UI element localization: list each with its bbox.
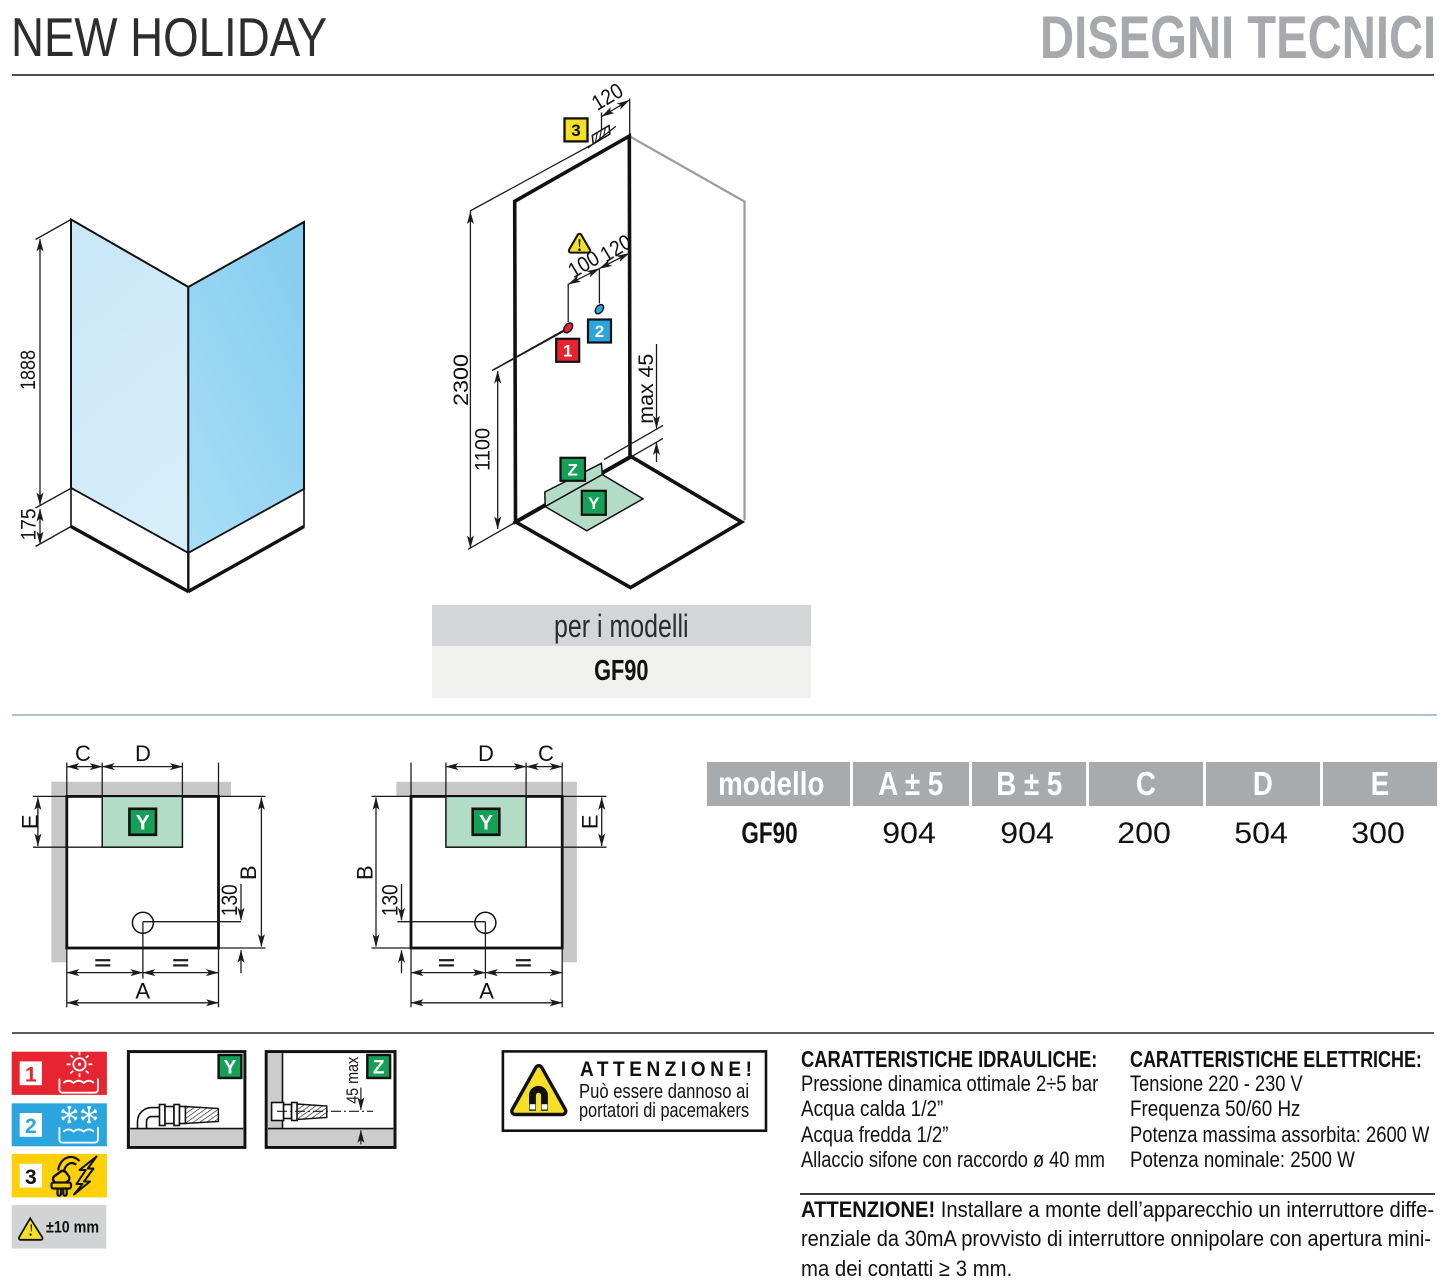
svg-text:130: 130 xyxy=(378,884,403,916)
svg-text:D: D xyxy=(135,741,151,766)
svg-text:1888: 1888 xyxy=(16,350,40,390)
svg-text:C: C xyxy=(75,741,91,766)
svg-text:C: C xyxy=(538,741,554,766)
svg-text:D: D xyxy=(478,741,494,766)
svg-text:Y: Y xyxy=(136,811,150,834)
svg-text:Y: Y xyxy=(588,494,600,513)
svg-text:Z: Z xyxy=(373,1057,385,1078)
svg-text:120: 120 xyxy=(588,78,628,115)
svg-text:B: B xyxy=(236,865,261,880)
svg-text:A: A xyxy=(479,979,494,1004)
svg-text:E: E xyxy=(577,814,602,829)
svg-text:2: 2 xyxy=(595,322,604,341)
svg-text:B: B xyxy=(353,865,378,880)
svg-text:Y: Y xyxy=(479,811,493,834)
svg-text:3: 3 xyxy=(25,1166,37,1189)
svg-text:E: E xyxy=(17,814,42,829)
svg-text:A: A xyxy=(135,979,150,1004)
svg-text:Y: Y xyxy=(224,1057,237,1078)
svg-text:1: 1 xyxy=(25,1064,37,1087)
svg-text:130: 130 xyxy=(217,884,242,916)
svg-text:3: 3 xyxy=(571,121,580,140)
svg-text:max 45: max 45 xyxy=(635,354,658,424)
svg-text:Z: Z xyxy=(568,460,578,479)
svg-text:45 max: 45 max xyxy=(344,1056,362,1104)
svg-text:2300: 2300 xyxy=(449,354,473,406)
svg-text:2: 2 xyxy=(25,1115,37,1138)
svg-text:1100: 1100 xyxy=(471,428,495,471)
svg-text:175: 175 xyxy=(16,508,40,540)
svg-text:1: 1 xyxy=(563,341,572,360)
svg-text:±10 mm: ±10 mm xyxy=(46,1219,99,1237)
